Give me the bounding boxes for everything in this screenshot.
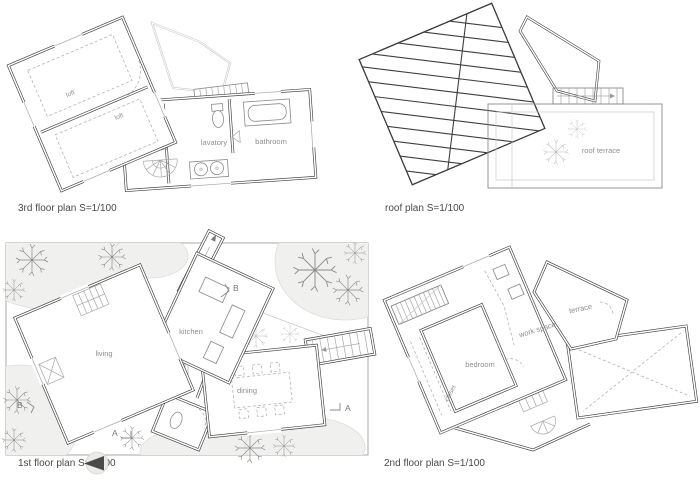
terrace-plant-icon: [567, 119, 586, 138]
roof-terrace-label: roof terrace: [582, 146, 620, 155]
dining-label: dining: [237, 386, 257, 395]
bedroom-label: bedroom: [465, 360, 495, 369]
living-label: living: [95, 349, 112, 358]
section-marker-a-right: A: [345, 403, 351, 413]
floor-plans-drawing: loft loft lavatory bathroom 3rd floor pl…: [0, 0, 700, 482]
corridor-wall: [455, 424, 590, 450]
second-floor-caption: 2nd floor plan S=1/100: [384, 458, 485, 469]
section-marker-b-left: B: [17, 400, 23, 410]
second-floor-plan: bedroom closet work space terrace 2nd fl…: [380, 244, 696, 469]
bathtub-fixture: [243, 99, 291, 126]
third-floor-caption: 3rd floor plan S=1/100: [18, 203, 117, 214]
floor-plan-sheet: loft loft lavatory bathroom 3rd floor pl…: [0, 0, 700, 482]
kitchen-label: kitchen: [179, 327, 203, 336]
roof-caption: roof plan S=1/100: [385, 203, 465, 214]
section-marker-a-left: A: [112, 428, 118, 438]
sink-fixture: [189, 159, 228, 179]
section-marker-b-top: B: [233, 283, 239, 293]
bathroom-label: bathroom: [255, 137, 287, 146]
third-floor-plan: loft loft lavatory bathroom 3rd floor pl…: [4, 13, 319, 214]
terrace-plant-icon: [543, 139, 569, 165]
first-floor-plan: living kitchen dining B B A A 1st floor …: [0, 204, 415, 480]
lavatory-label: lavatory: [201, 138, 228, 147]
